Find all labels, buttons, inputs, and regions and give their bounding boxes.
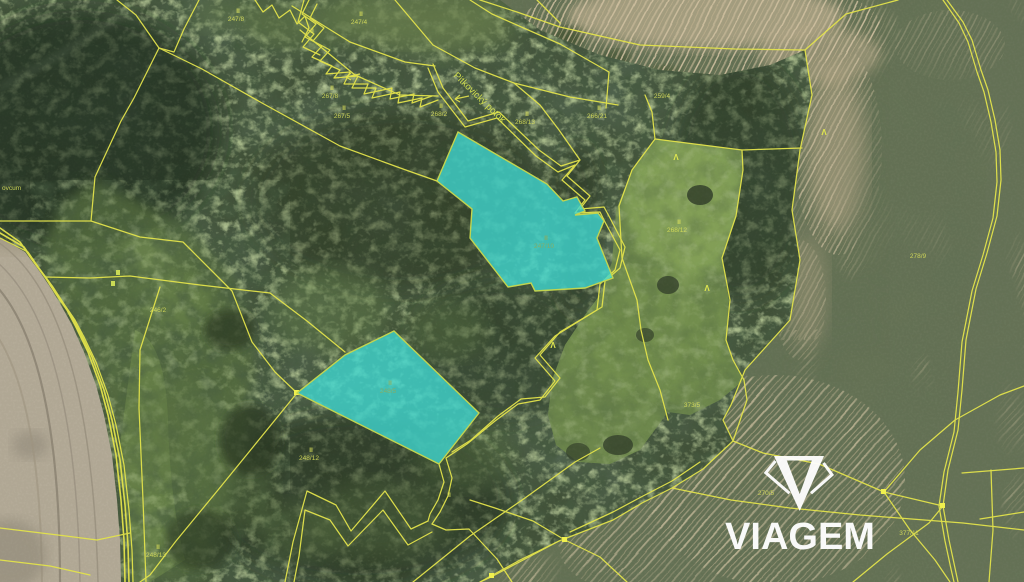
svg-text:267/8: 267/8 xyxy=(322,93,339,100)
svg-text:259/4: 259/4 xyxy=(654,93,671,100)
svg-text:268/2: 268/2 xyxy=(431,111,448,118)
svg-text:Λ: Λ xyxy=(821,128,827,137)
svg-text:247/8: 247/8 xyxy=(228,16,245,23)
svg-text:Λ: Λ xyxy=(704,284,710,293)
svg-text:II: II xyxy=(359,11,363,18)
svg-text:266/21: 266/21 xyxy=(587,113,607,120)
svg-text:268/12: 268/12 xyxy=(667,227,687,234)
svg-text:II: II xyxy=(388,380,392,387)
svg-text:VIAGEM: VIAGEM xyxy=(725,516,875,558)
svg-text:II: II xyxy=(525,111,529,118)
svg-text:248/5: 248/5 xyxy=(380,388,397,395)
svg-text:247/4: 247/4 xyxy=(351,19,368,26)
svg-text:II: II xyxy=(156,544,160,551)
svg-text:248/13: 248/13 xyxy=(146,552,166,559)
svg-text:II: II xyxy=(236,8,240,15)
svg-text:247/10: 247/10 xyxy=(534,243,554,250)
svg-text:II: II xyxy=(439,103,443,110)
svg-text:ovcum: ovcum xyxy=(2,185,21,192)
svg-text:270/5: 270/5 xyxy=(758,490,775,497)
svg-text:377/11: 377/11 xyxy=(899,530,919,537)
svg-text:II: II xyxy=(330,85,334,92)
svg-text:248/12: 248/12 xyxy=(299,455,319,462)
svg-text:Λ: Λ xyxy=(673,153,679,162)
svg-text:267/5: 267/5 xyxy=(334,113,351,120)
svg-text:II: II xyxy=(447,492,451,499)
svg-text:268/13: 268/13 xyxy=(515,119,535,126)
svg-text:II: II xyxy=(309,447,313,454)
svg-text:373/5: 373/5 xyxy=(684,402,701,409)
svg-text:II: II xyxy=(544,235,548,242)
svg-text:278/9: 278/9 xyxy=(910,253,927,260)
svg-text:II: II xyxy=(310,28,314,35)
svg-text:Λ: Λ xyxy=(550,341,556,350)
svg-text:II: II xyxy=(597,105,601,112)
svg-text:II: II xyxy=(677,219,681,226)
svg-text:II: II xyxy=(342,105,346,112)
svg-text:246/2: 246/2 xyxy=(150,307,167,314)
